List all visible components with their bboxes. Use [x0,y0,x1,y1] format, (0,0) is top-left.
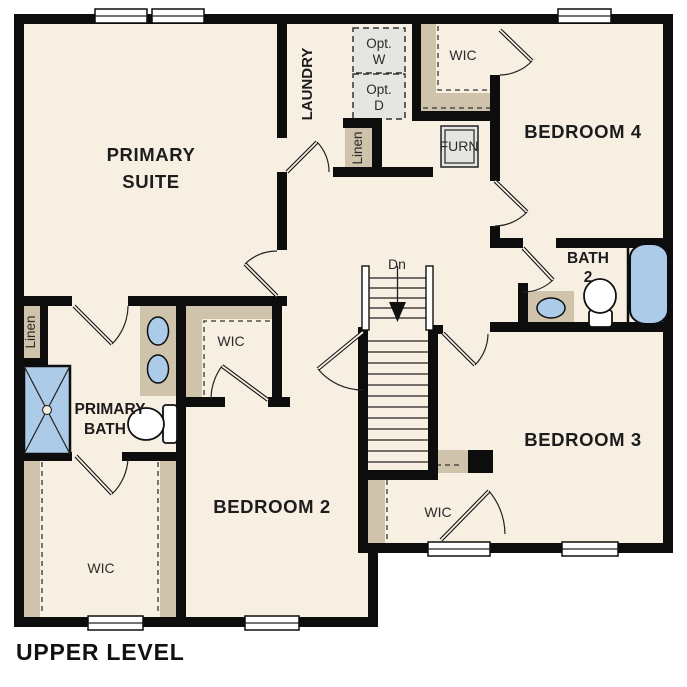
wic-bedroom4-label: WIC [449,47,476,63]
linen-hall-label: Linen [23,315,38,348]
stair-rail-right [426,266,433,330]
wall-segment [176,397,225,407]
linen-laundry-label: Linen [350,131,365,164]
wall-chase [468,450,493,473]
wall-segment [40,300,48,362]
toilet-primary-tank [163,405,177,443]
wall-segment [277,172,287,250]
wall-segment [490,238,523,248]
sink-bath2 [537,298,565,318]
page-title: UPPER LEVEL [16,639,185,665]
sink-primary-1 [148,317,169,345]
wall-segment [368,545,378,627]
wic-primary-label: WIC [217,333,244,349]
bedroom2-label: BEDROOM 2 [213,496,330,517]
wall-segment [343,118,376,128]
toilet-bath2 [584,279,616,327]
wic-lowerleft-shelf-left [24,460,40,617]
wall-segment [14,617,378,627]
bedroom3-label: BEDROOM 3 [524,429,641,450]
wall-segment [490,121,500,181]
wic-lowerleft-label: WIC [87,560,114,576]
shower-drain [43,406,52,415]
wic-lowerleft-shelf-right [160,460,176,617]
floor-plan-canvas: PRIMARYSUITE LAUNDRY Opt.W Opt.D WIC BED… [0,0,687,687]
wall-segment [128,296,287,306]
wall-segment [176,296,186,617]
floor-main [14,14,673,553]
wall-segment [490,75,500,111]
wall-segment [368,543,673,553]
wall-segment [268,397,290,407]
bedroom4-label: BEDROOM 4 [524,121,642,142]
floor-lower-left [14,545,378,627]
wic-bedroom3-label: WIC [424,504,451,520]
wall-segment [412,24,421,121]
wall-segment [277,24,287,138]
wall-segment [272,296,282,407]
wall-segment [358,327,368,553]
stairs-dn-label: Dn [388,256,406,272]
sink-primary-2 [148,355,169,383]
floor-plan: PRIMARYSUITE LAUNDRY Opt.W Opt.D WIC BED… [0,0,687,687]
shower-primary [24,366,70,454]
wall-segment [358,470,438,480]
floor-area [14,14,673,627]
wall-segment [333,167,433,177]
wic-bed3-shelf-left [368,478,385,543]
bathtub-bath2 [630,244,668,324]
wall-segment [412,111,500,121]
stair-rail-left [362,266,369,330]
furnace-label: FURN [440,138,479,154]
wic-primary-shelf-left [186,306,202,397]
wall-segment [428,327,438,473]
laundry-label: LAUNDRY [299,48,316,121]
